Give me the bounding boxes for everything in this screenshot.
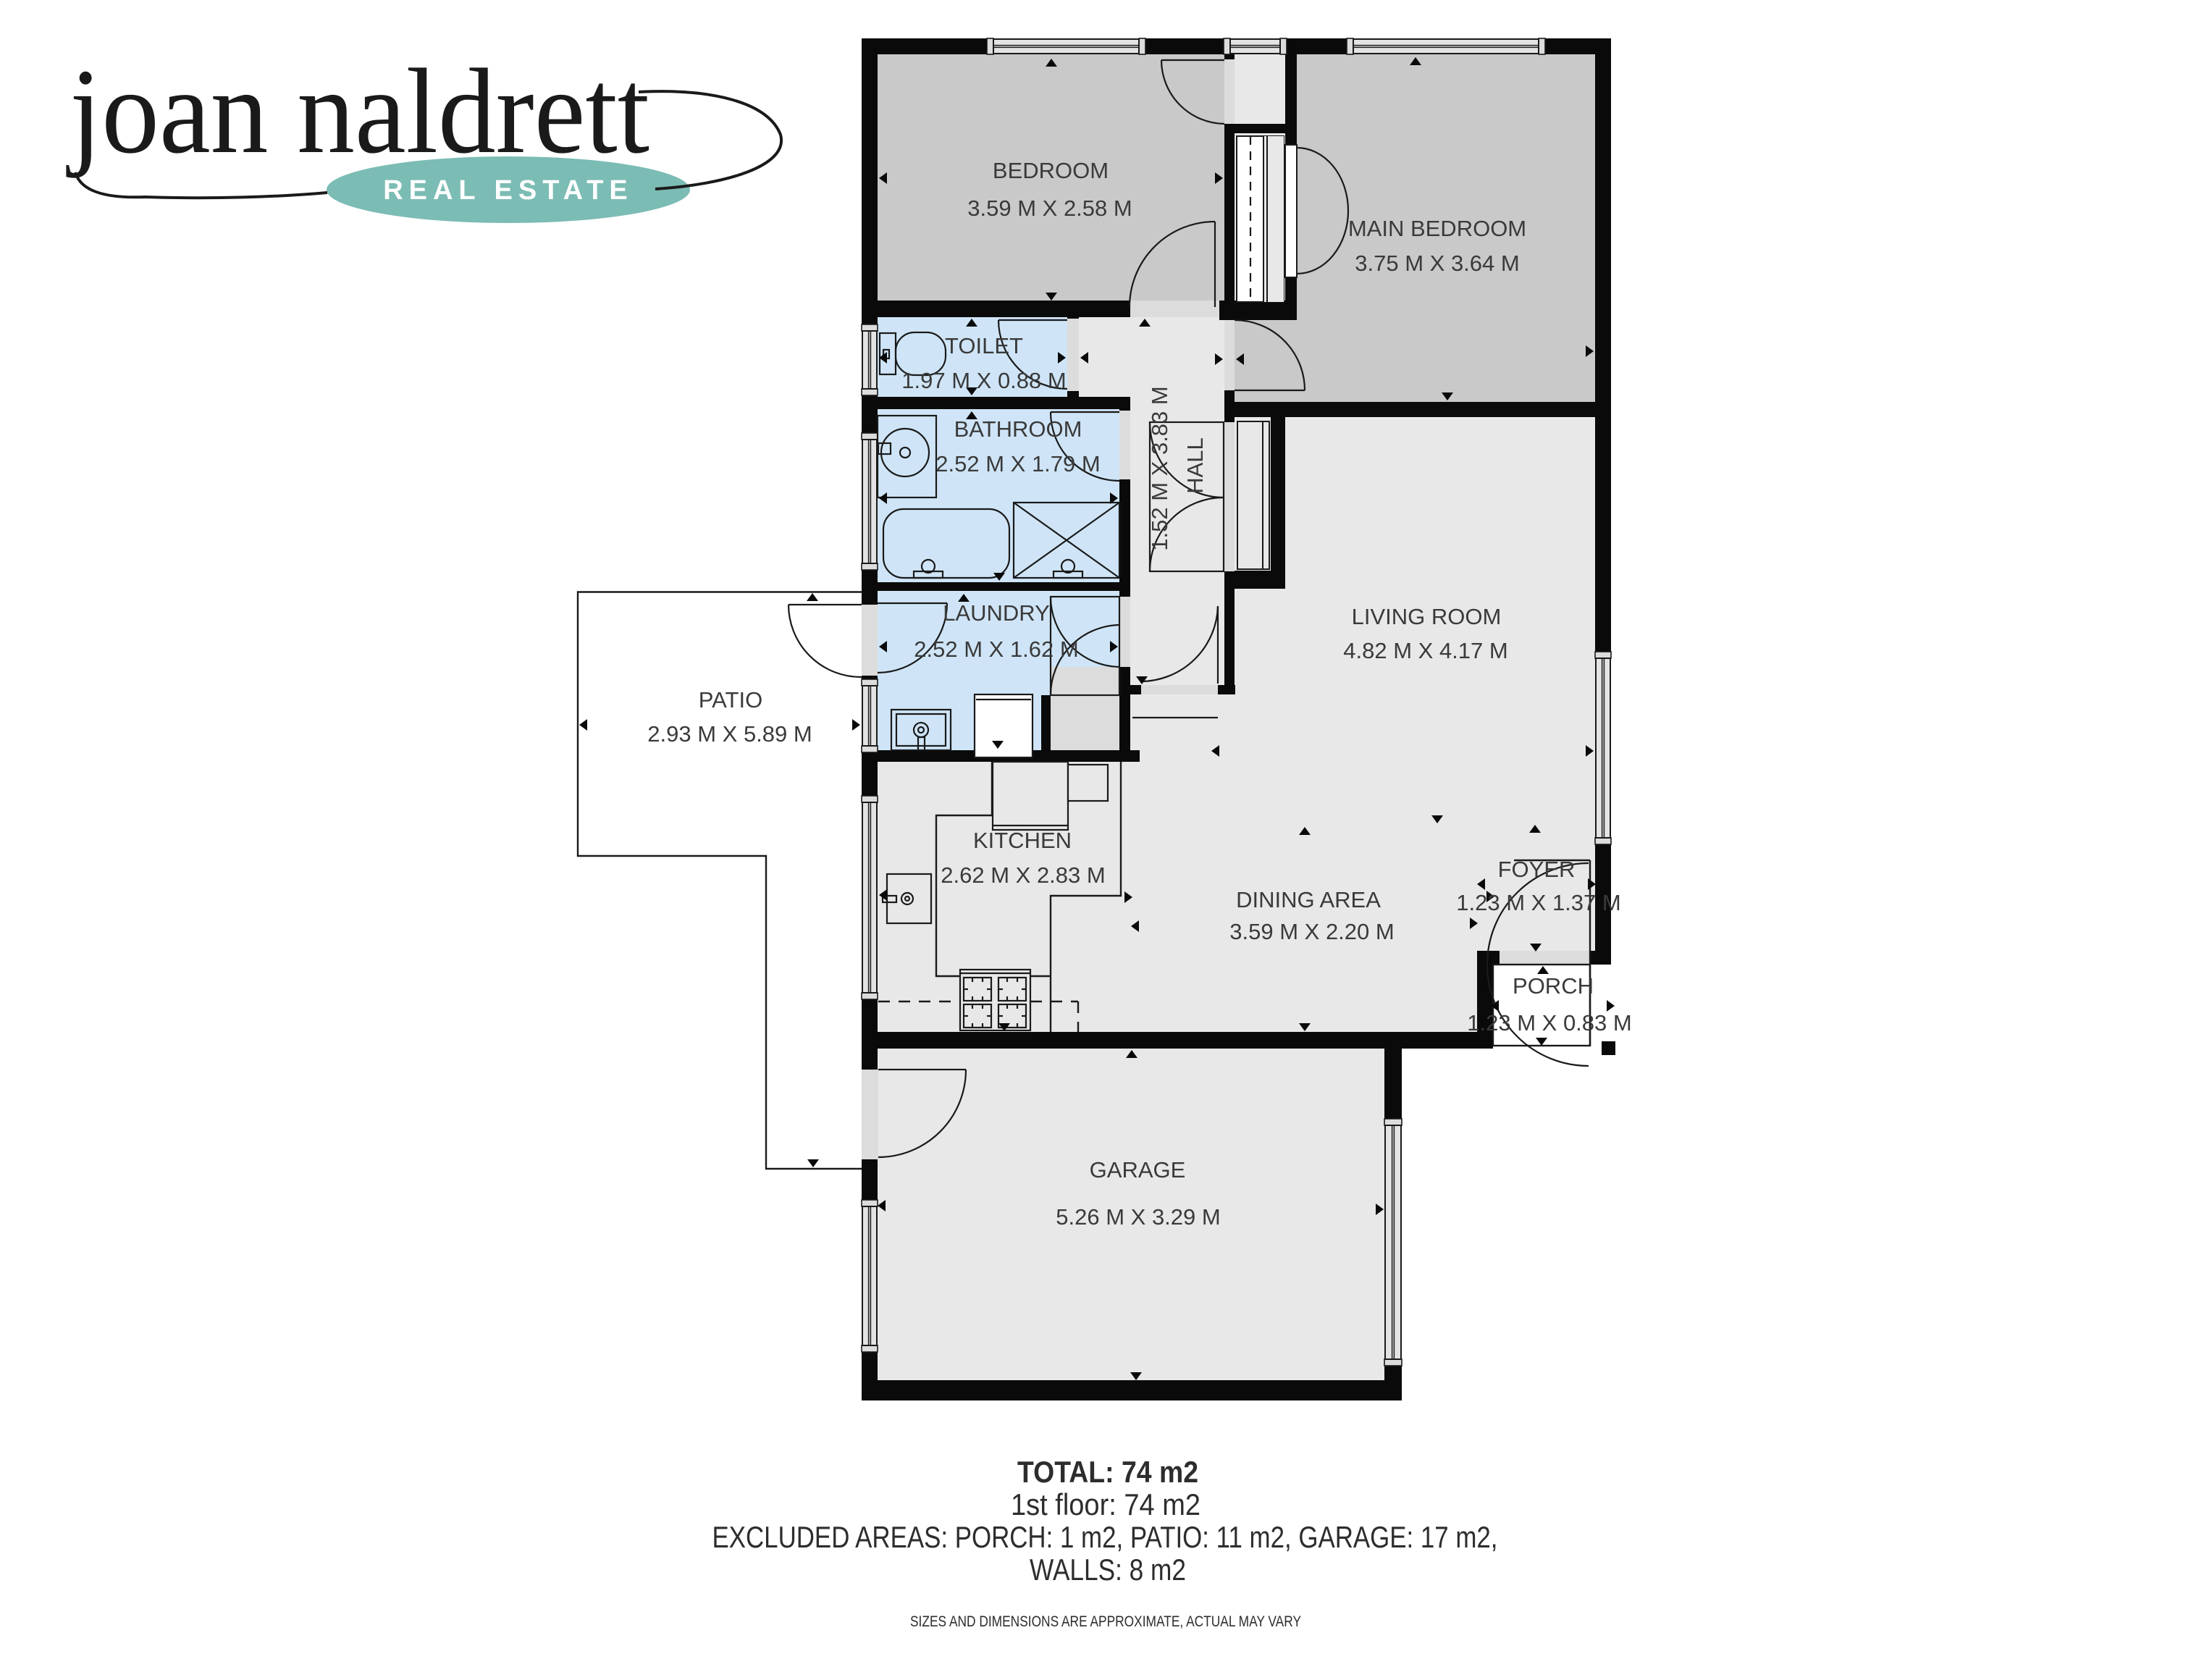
svg-text:1.23 M X 1.37 M: 1.23 M X 1.37 M [1456,890,1620,915]
svg-text:BATHROOM: BATHROOM [954,416,1082,442]
svg-text:LIVING ROOM: LIVING ROOM [1352,604,1502,629]
svg-text:joan naldrett: joan naldrett [66,44,649,179]
svg-text:1.97 M X 0.88 M: 1.97 M X 0.88 M [901,368,1066,393]
svg-text:REAL ESTATE: REAL ESTATE [383,175,634,206]
svg-text:2.52 M X 1.62 M: 2.52 M X 1.62 M [914,637,1078,662]
svg-text:SIZES AND DIMENSIONS ARE APPRO: SIZES AND DIMENSIONS ARE APPROXIMATE, AC… [910,1613,1301,1630]
svg-text:TOILET: TOILET [945,333,1023,358]
svg-text:2.93 M X 5.89 M: 2.93 M X 5.89 M [647,721,812,747]
svg-text:GARAGE: GARAGE [1090,1157,1186,1183]
svg-text:2.62 M X 2.83 M: 2.62 M X 2.83 M [941,862,1105,888]
svg-text:KITCHEN: KITCHEN [973,828,1072,853]
svg-text:3.59 M X 2.20 M: 3.59 M X 2.20 M [1229,919,1394,944]
svg-text:BEDROOM: BEDROOM [993,158,1109,183]
svg-text:DINING AREA: DINING AREA [1236,887,1381,912]
svg-text:TOTAL: 74 m2: TOTAL: 74 m2 [1017,1455,1198,1489]
svg-text:1st floor: 74 m2: 1st floor: 74 m2 [1011,1487,1200,1521]
svg-text:5.26 M X 3.29 M: 5.26 M X 3.29 M [1056,1204,1220,1230]
svg-text:3.75 M X 3.64 M: 3.75 M X 3.64 M [1355,251,1519,276]
svg-text:LAUNDRY: LAUNDRY [943,600,1050,626]
svg-text:4.82 M X 4.17 M: 4.82 M X 4.17 M [1343,638,1507,663]
svg-text:1.52 M X 3.83 M: 1.52 M X 3.83 M [1147,386,1172,550]
svg-text:PORCH: PORCH [1513,973,1594,999]
svg-text:1.23 M X 0.83 M: 1.23 M X 0.83 M [1467,1010,1631,1036]
svg-text:MAIN BEDROOM: MAIN BEDROOM [1348,216,1526,241]
svg-text:WALLS: 8 m2: WALLS: 8 m2 [1030,1553,1186,1587]
svg-text:FOYER: FOYER [1498,857,1576,882]
svg-text:HALL: HALL [1182,437,1208,494]
svg-text:3.59 M X 2.58 M: 3.59 M X 2.58 M [967,196,1132,221]
svg-text:2.52 M X 1.79 M: 2.52 M X 1.79 M [935,451,1100,476]
svg-text:EXCLUDED AREAS: PORCH: 1 m2, P: EXCLUDED AREAS: PORCH: 1 m2, PATIO: 11 m… [712,1520,1498,1554]
svg-text:PATIO: PATIO [699,687,762,713]
